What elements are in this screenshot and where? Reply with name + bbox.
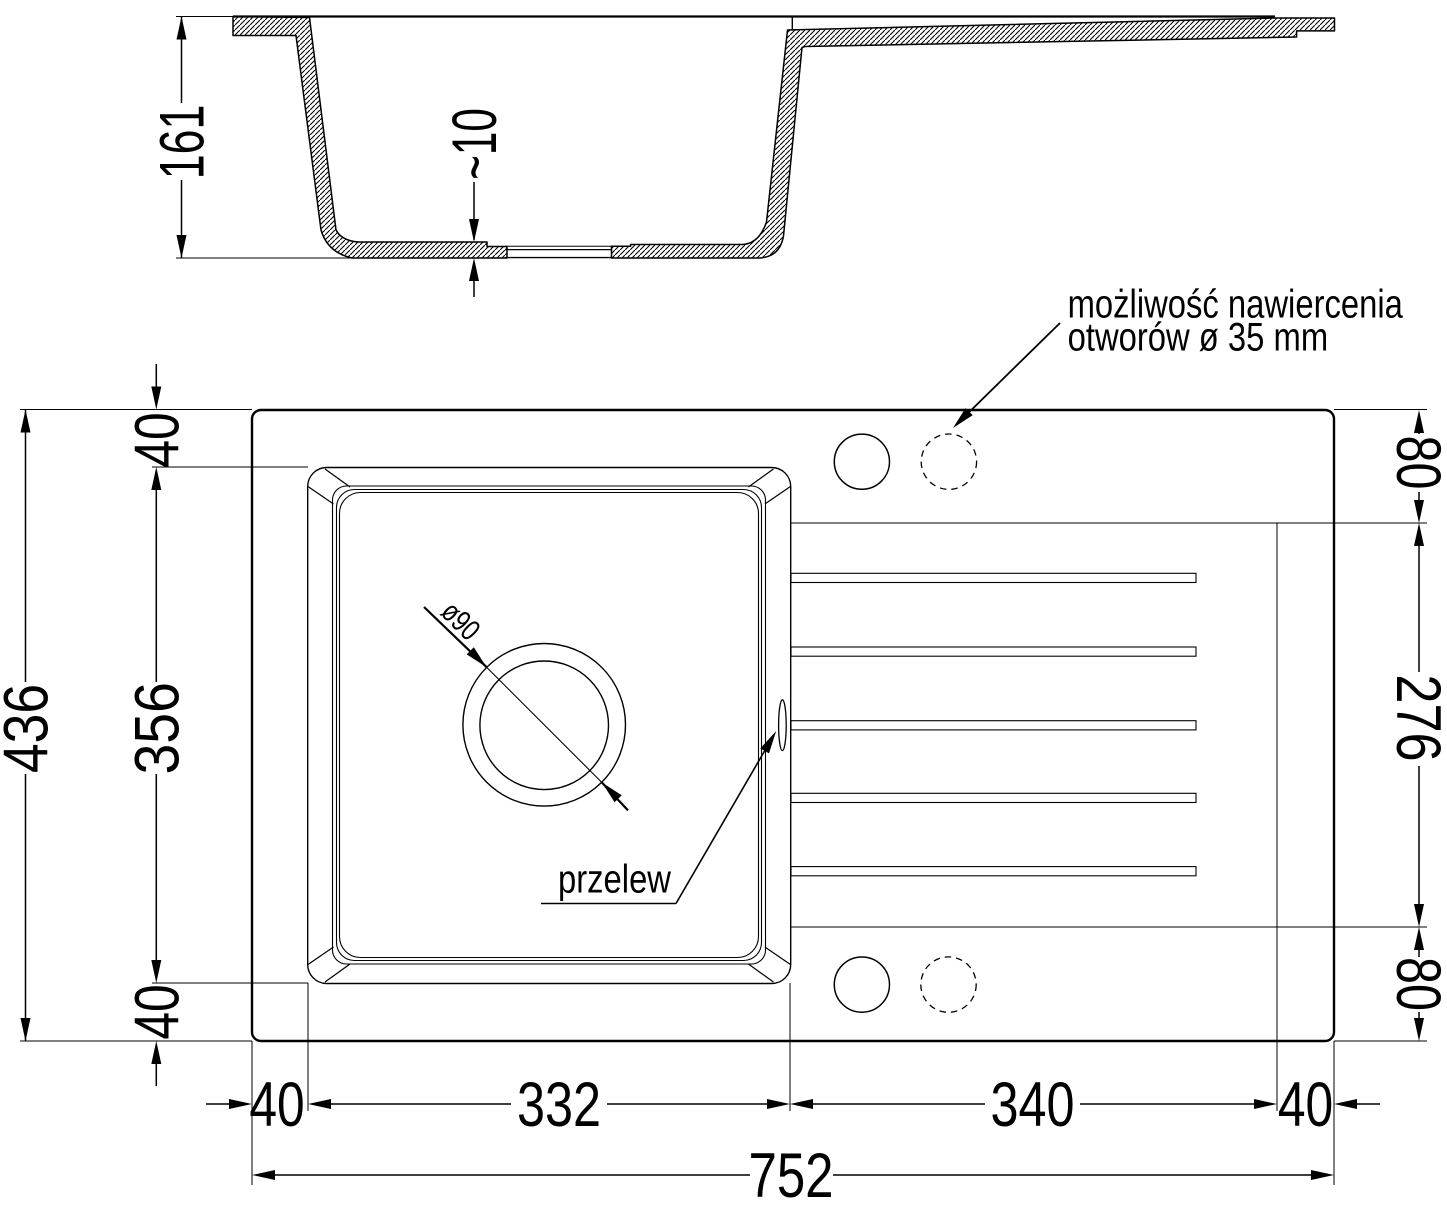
- svg-text:356: 356: [121, 682, 192, 774]
- svg-text:otworów ø 35 mm: otworów ø 35 mm: [1068, 314, 1329, 359]
- svg-text:340: 340: [990, 1070, 1074, 1141]
- svg-text:80: 80: [1384, 957, 1447, 1011]
- svg-text:752: 752: [748, 1141, 833, 1209]
- svg-text:40: 40: [249, 1071, 304, 1141]
- svg-text:276: 276: [1383, 674, 1447, 761]
- svg-text:161: 161: [147, 105, 217, 180]
- svg-text:~10: ~10: [440, 108, 510, 180]
- svg-text:332: 332: [517, 1070, 601, 1141]
- svg-text:40: 40: [123, 984, 193, 1039]
- svg-text:przelew: przelew: [558, 856, 672, 901]
- svg-text:436: 436: [0, 684, 62, 773]
- svg-text:80: 80: [1384, 436, 1447, 490]
- svg-text:40: 40: [123, 412, 193, 467]
- svg-text:40: 40: [1278, 1071, 1333, 1141]
